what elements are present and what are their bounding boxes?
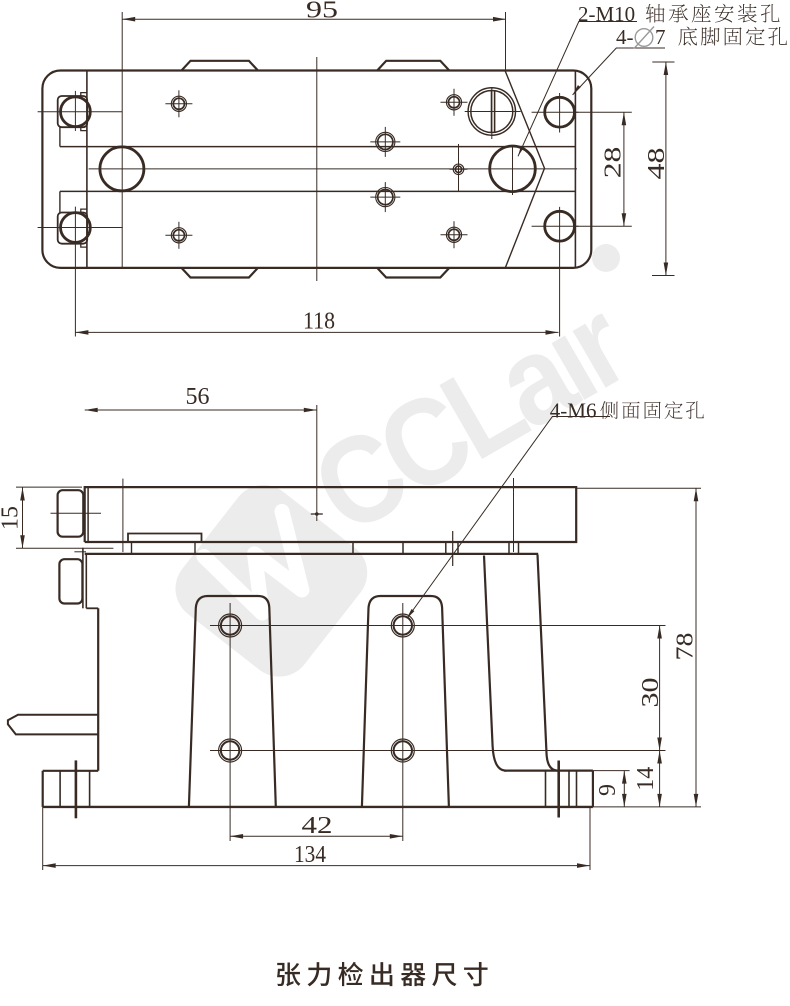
svg-text:28: 28: [601, 147, 627, 179]
svg-text:134: 134: [294, 842, 326, 868]
svg-text:42: 42: [302, 813, 333, 839]
svg-text:9: 9: [595, 784, 621, 796]
svg-text:4-: 4-: [616, 25, 634, 49]
svg-text:78: 78: [673, 633, 699, 661]
svg-text:4-M6: 4-M6: [550, 399, 597, 423]
svg-text:48: 48: [644, 148, 670, 180]
svg-text:95: 95: [306, 0, 338, 24]
svg-text:30: 30: [638, 678, 664, 708]
svg-text:56: 56: [186, 384, 210, 410]
svg-text:118: 118: [303, 309, 335, 335]
svg-text:15: 15: [0, 506, 24, 530]
svg-text:14: 14: [633, 767, 659, 791]
svg-text:7: 7: [655, 25, 666, 49]
svg-text:2-M10: 2-M10: [578, 2, 635, 26]
